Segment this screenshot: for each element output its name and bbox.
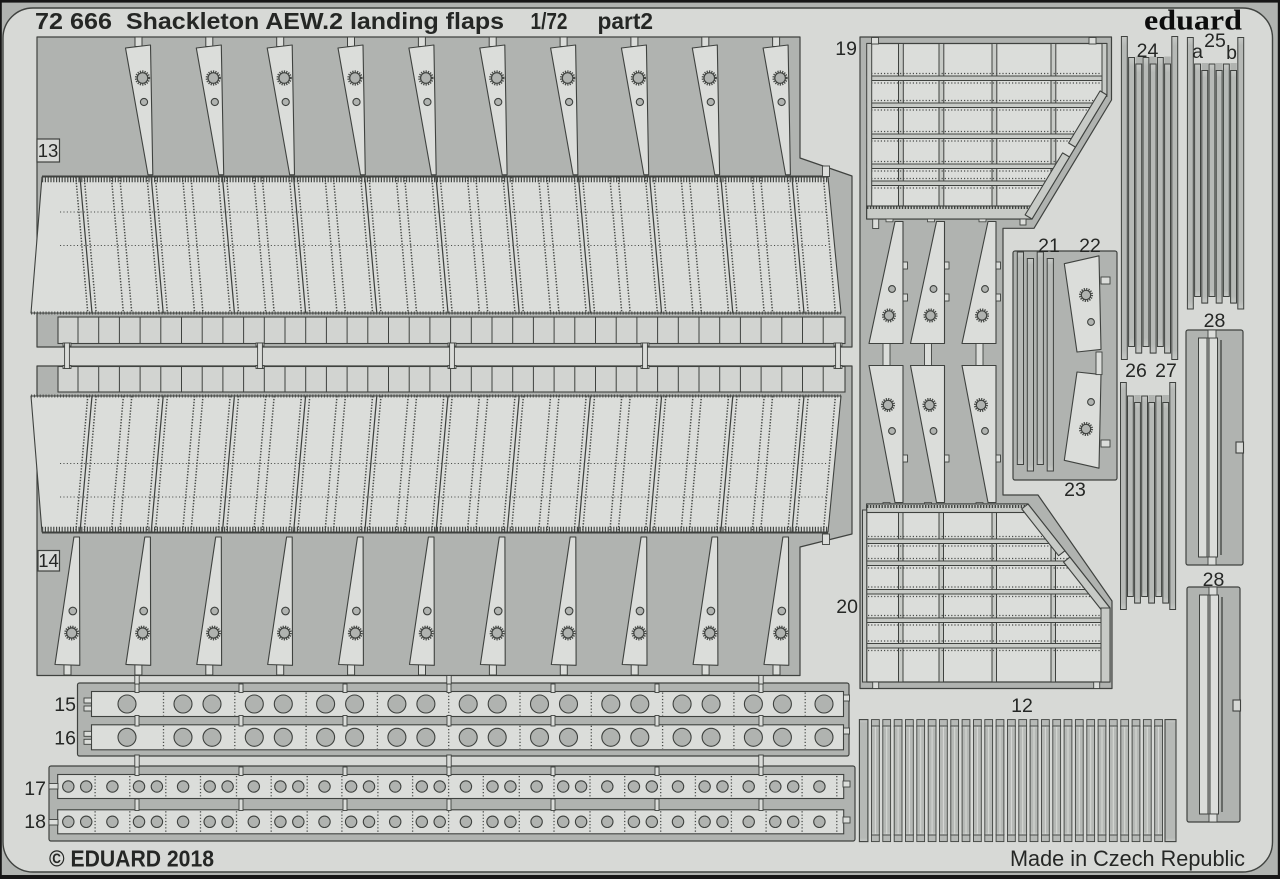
svg-text:21: 21 bbox=[1038, 235, 1060, 257]
svg-text:27: 27 bbox=[1155, 360, 1177, 382]
svg-text:17: 17 bbox=[24, 778, 46, 800]
svg-text:16: 16 bbox=[54, 728, 76, 750]
svg-text:18: 18 bbox=[24, 811, 46, 833]
svg-text:28: 28 bbox=[1203, 569, 1225, 591]
svg-text:14: 14 bbox=[38, 550, 59, 571]
svg-text:© EDUARD 2018: © EDUARD 2018 bbox=[49, 846, 214, 872]
svg-text:15: 15 bbox=[54, 694, 76, 716]
svg-text:25: 25 bbox=[1204, 30, 1226, 52]
svg-text:19: 19 bbox=[835, 38, 857, 60]
svg-text:eduard: eduard bbox=[1144, 6, 1242, 37]
svg-text:13: 13 bbox=[38, 140, 59, 161]
svg-text:a: a bbox=[1192, 41, 1203, 63]
svg-text:26: 26 bbox=[1125, 360, 1147, 382]
svg-text:20: 20 bbox=[836, 596, 858, 618]
svg-text:28: 28 bbox=[1204, 310, 1226, 332]
svg-text:72 666: 72 666 bbox=[35, 8, 112, 34]
svg-text:1/72: 1/72 bbox=[531, 8, 568, 34]
svg-text:Made in Czech Republic: Made in Czech Republic bbox=[1010, 846, 1245, 871]
svg-text:b: b bbox=[1226, 42, 1237, 64]
svg-text:12: 12 bbox=[1011, 695, 1033, 717]
svg-text:24: 24 bbox=[1137, 40, 1159, 62]
svg-text:23: 23 bbox=[1064, 479, 1086, 501]
svg-text:part2: part2 bbox=[598, 8, 654, 34]
svg-text:22: 22 bbox=[1079, 235, 1101, 257]
svg-text:Shackleton AEW.2 landing flaps: Shackleton AEW.2 landing flaps bbox=[126, 8, 504, 34]
